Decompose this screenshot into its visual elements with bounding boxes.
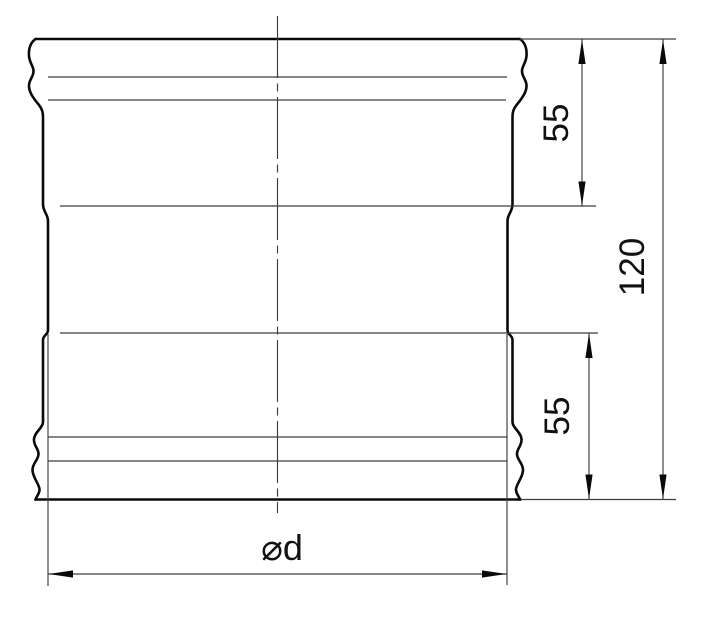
arrow-right-icon [482, 570, 507, 577]
part-right-profile [508, 39, 527, 500]
technical-drawing-page: 55 55 120 ⌀d [0, 0, 708, 622]
dimension-label-top-socket: 55 [537, 104, 576, 143]
arrow-down-icon [578, 182, 585, 206]
coupling-dimension-drawing: 55 55 120 ⌀d [0, 0, 708, 622]
part-left-profile [29, 39, 48, 500]
arrow-down-icon [659, 475, 666, 500]
dimension-label-bottom-socket: 55 [538, 397, 577, 436]
arrow-up-icon [659, 40, 666, 65]
arrow-left-icon [49, 570, 74, 577]
arrow-up-icon [578, 40, 585, 65]
arrow-down-icon [585, 475, 592, 500]
arrow-up-icon [585, 334, 592, 359]
dimension-label-diameter: ⌀d [261, 527, 303, 568]
dimension-label-overall-length: 120 [613, 238, 652, 296]
